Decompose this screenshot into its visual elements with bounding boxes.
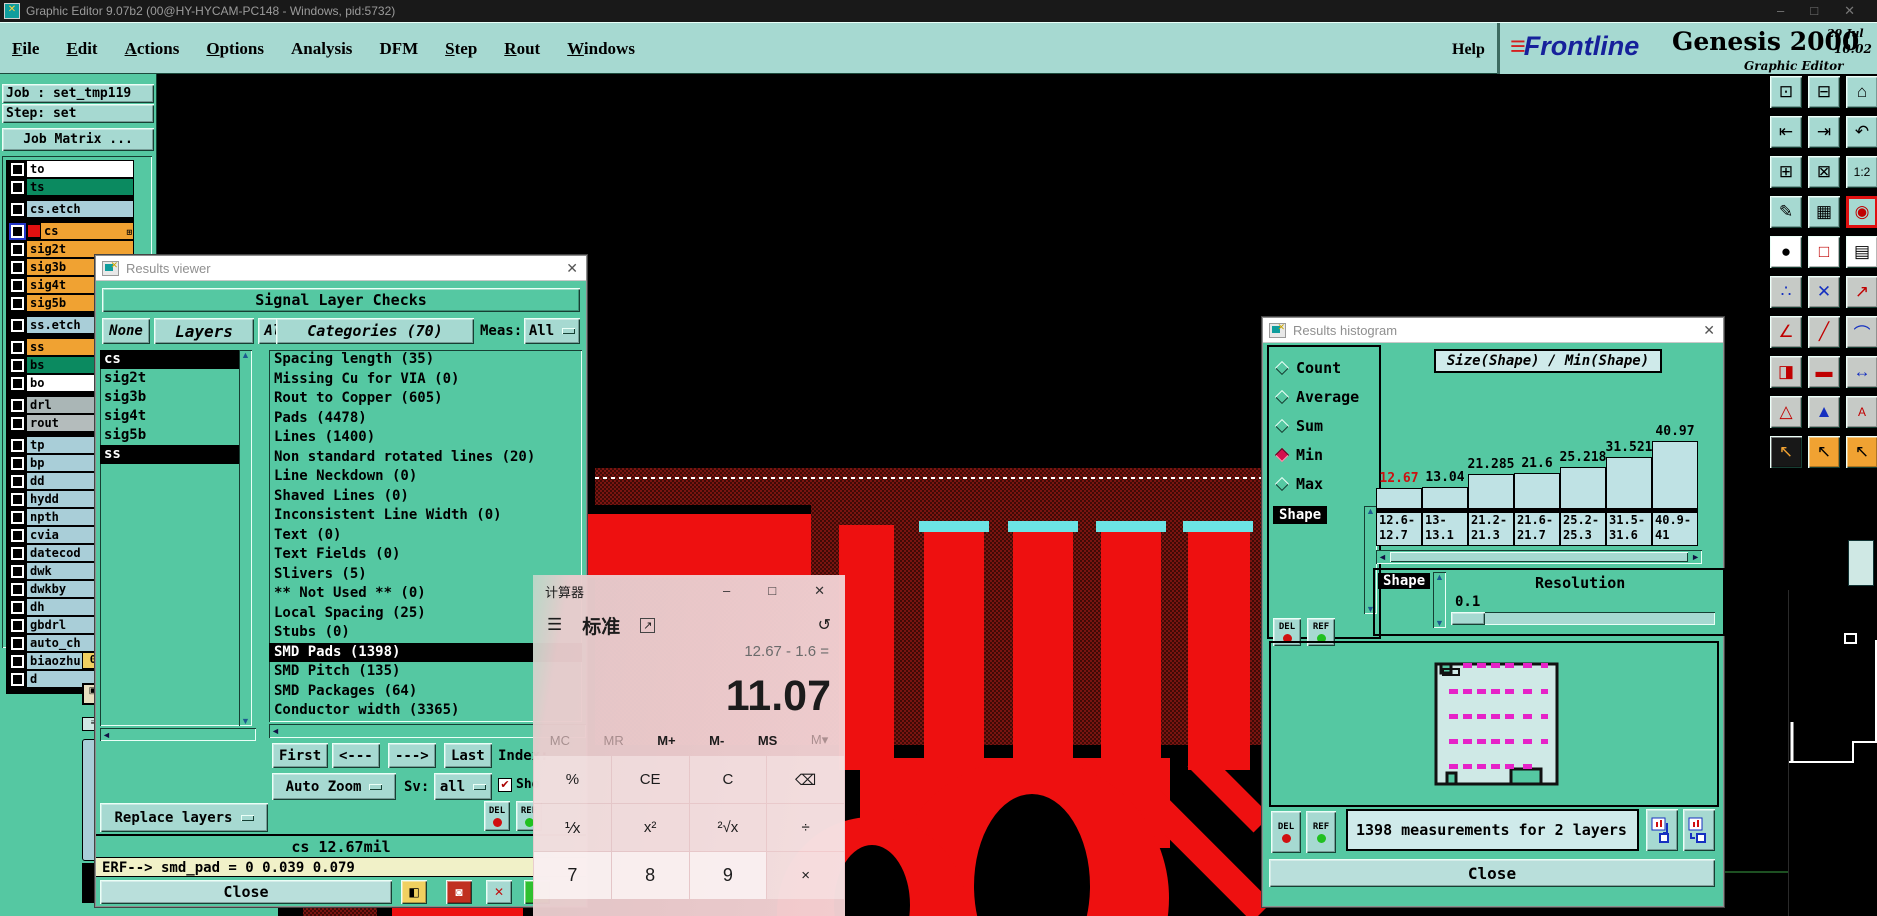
layer-checkbox[interactable]	[11, 619, 24, 632]
triangle-high-icon[interactable]: A	[1846, 396, 1877, 428]
layer-checkbox[interactable]	[11, 359, 24, 372]
layer-checkbox-cell	[7, 179, 27, 195]
green-dot-icon	[1317, 834, 1326, 843]
option-dash-icon	[241, 815, 254, 821]
app-icon: ✕	[4, 3, 20, 19]
calc-key-x²[interactable]: x²	[612, 804, 689, 851]
layer-checkbox[interactable]	[11, 399, 24, 412]
rv-layer-item-cs[interactable]: cs	[100, 350, 239, 369]
layer-checkbox-cell	[7, 277, 27, 293]
layer-checkbox-cell	[7, 581, 27, 597]
bar-value-label: 40.97	[1655, 424, 1694, 439]
window-title: Graphic Editor 9.07b2 (00@HY-HYCAM-PC148…	[26, 4, 395, 18]
radio-diamond-icon	[1275, 447, 1289, 461]
bar-slot: 31.521	[1606, 378, 1652, 509]
prev-button[interactable]: <---	[332, 743, 380, 768]
bin-range-cell: 31.5-31.6	[1606, 512, 1652, 546]
layer-checkbox-cell	[7, 617, 27, 633]
bin-range-cell: 12.6-12.7	[1376, 512, 1422, 546]
layer-checkbox-cell	[7, 161, 27, 177]
scroll-thumb[interactable]	[1390, 552, 1688, 562]
triangle-low-icon[interactable]: △	[1770, 396, 1802, 428]
histogram-bar[interactable]	[1514, 473, 1560, 509]
bin-range-cell: 13-13.1	[1422, 512, 1468, 546]
sv-label: Sv:	[404, 779, 429, 795]
bar-slot: 21.6	[1514, 378, 1560, 509]
auto-zoom-dropdown[interactable]: Auto Zoom	[272, 773, 396, 800]
option-dash-icon	[369, 784, 382, 790]
rv-category-item[interactable]: Inconsistent Line Width (0)	[269, 506, 582, 526]
product-subtitle: Graphic Editor	[1744, 59, 1843, 73]
metric-radio-min[interactable]: Min	[1277, 440, 1379, 469]
metric-radio-count[interactable]: Count	[1277, 353, 1379, 382]
rv-category-item[interactable]: Spacing length (35)	[269, 350, 582, 370]
net-highlight-icon[interactable]: ◉	[1846, 196, 1877, 228]
calculator-mode: 标准	[582, 612, 620, 639]
results-viewer-title: Results viewer	[126, 261, 211, 276]
filter-layers-button[interactable]: Layers	[154, 318, 254, 344]
rv-category-item[interactable]: Pads (4478)	[269, 409, 582, 429]
profile-overview[interactable]	[1788, 590, 1877, 916]
cursor-frame-icon[interactable]: ↖	[1808, 436, 1840, 468]
calc-key-⌫[interactable]: ⌫	[767, 756, 844, 803]
histogram-bar[interactable]	[1606, 457, 1652, 509]
layer-checkbox-cell	[7, 437, 27, 453]
ref-button[interactable]: REF	[1306, 811, 1336, 853]
menu-help[interactable]: Help	[1452, 41, 1485, 59]
layer-checkbox-cell	[7, 527, 27, 543]
histogram-bar[interactable]	[1422, 487, 1468, 509]
bar-value-label: 13.04	[1425, 470, 1464, 485]
measure-type-item[interactable]: Shape	[1273, 506, 1327, 524]
histogram-titlebar[interactable]: Results histogram ✕	[1263, 318, 1723, 343]
vertical-scrollbar[interactable]: ▲▼	[1433, 572, 1446, 628]
memory-row: MCMRM+M-MSM▾	[533, 725, 845, 755]
layer-checkbox[interactable]	[11, 417, 24, 430]
dialog-icon	[102, 261, 119, 276]
flip-icon[interactable]: ◧	[401, 880, 427, 904]
status-readout: cs 12.67mil	[96, 834, 586, 858]
rv-layer-item-ss[interactable]: ss	[100, 445, 239, 464]
rv-layer-item-sig3b[interactable]: sig3b	[100, 388, 239, 407]
menu-dfm[interactable]: DFM	[379, 39, 418, 59]
close-icon[interactable]: ✕	[1844, 3, 1855, 19]
mini-panel	[1848, 540, 1874, 586]
line-width-icon[interactable]: ▬	[1808, 356, 1840, 388]
rv-category-item[interactable]: Missing Cu for VIA (0)	[269, 370, 582, 390]
red-dot-icon	[1282, 834, 1291, 843]
layer-checkbox[interactable]	[11, 583, 24, 596]
zoom-center-icon[interactable]: ⊠	[1808, 156, 1840, 188]
import-histogram-icon[interactable]	[1683, 809, 1715, 851]
layer-checkbox-cell	[7, 375, 27, 391]
calc-key-9[interactable]: 9	[690, 852, 767, 899]
meas-dropdown[interactable]: All	[524, 318, 580, 344]
pad-measure-icon[interactable]: ◨	[1770, 356, 1802, 388]
ref-cross-icon[interactable]: ✕	[486, 880, 512, 904]
bin-range-cell: 21.6-21.7	[1514, 512, 1560, 546]
delete-measure-icon[interactable]: ✕	[1808, 276, 1840, 308]
layer-checkbox-cell	[7, 671, 27, 687]
right-toolbar: ⊡⊟⌂⇤⇥↶⊞⊠1:2✎▦◉●□▤∴✕↗∠╱⌒◨▬↔△▲A↖↖↖	[1770, 76, 1877, 468]
layer-checkbox-cell	[7, 241, 27, 257]
layer-checkbox-cell	[7, 653, 27, 669]
rv-layer-listbox: cssig2tsig3bsig4tsig5bss ▲▼	[100, 350, 252, 726]
vertical-scrollbar[interactable]: ▲▼	[239, 350, 252, 726]
layer-row-cs[interactable]: cs⊞	[7, 223, 133, 239]
menu-analysis[interactable]: Analysis	[291, 39, 352, 59]
calculator-result: 11.07	[533, 667, 845, 725]
menu-actions[interactable]: Actions	[125, 39, 180, 59]
grid-icon[interactable]: ▦	[1808, 196, 1840, 228]
chart-hscrollbar[interactable]: ◄ ►	[1376, 550, 1702, 564]
bin-range-cell: 25.2-25.3	[1560, 512, 1606, 546]
layer-group: tots	[7, 161, 133, 195]
metric-radios: CountAverageSumMinMax	[1269, 347, 1379, 498]
calc-key-⅟x[interactable]: ⅟x	[534, 804, 611, 851]
select-symbol-icon[interactable]: ●	[1770, 236, 1802, 268]
step-label: Step: set	[2, 104, 154, 123]
rv-layers-hscrollbar[interactable]: ◄	[100, 728, 256, 741]
minimize-icon[interactable]: –	[1777, 3, 1784, 19]
calc-key-8[interactable]: 8	[612, 852, 689, 899]
layer-checkbox[interactable]	[11, 565, 24, 578]
history-icon[interactable]: ↺	[818, 615, 831, 635]
rv-category-item[interactable]: Rout to Copper (605)	[269, 389, 582, 409]
memory-button-M-[interactable]: M-	[709, 733, 724, 748]
calc-key-²√x[interactable]: ²√x	[690, 804, 767, 851]
layer-checkbox[interactable]	[11, 261, 24, 274]
results-viewer-titlebar[interactable]: Results viewer ✕	[96, 256, 586, 281]
menu-windows[interactable]: Windows	[567, 39, 635, 59]
rv-category-item[interactable]: Text (0)	[269, 526, 582, 546]
filter-none-button[interactable]: None	[102, 318, 150, 344]
metric-radio-label: Sum	[1296, 417, 1323, 435]
marker-icon[interactable]: ◙	[446, 880, 472, 904]
frontline-logo: ≡Frontline	[1510, 31, 1639, 62]
calculator-window: 计算器 – □ ✕ ☰ 标准 ↗ ↺ 12.67 - 1.6 = 11.07 M…	[533, 575, 845, 916]
bin-range-cell: 40.9-41	[1652, 512, 1698, 546]
menu-options[interactable]: Options	[206, 39, 264, 59]
zoom-fit-icon[interactable]: ⊞	[1770, 156, 1802, 188]
bin-range-cell: 21.2-21.3	[1468, 512, 1514, 546]
menu-bar: FileEditActionsOptionsAnalysisDFMStepRou…	[0, 22, 1877, 74]
time-label: 10:02	[1834, 42, 1872, 56]
maximize-icon[interactable]: □	[768, 583, 776, 599]
point-measure-icon[interactable]: ↗	[1846, 276, 1877, 308]
drop-view-icon[interactable]: ⊟	[1808, 76, 1840, 108]
layer-chip[interactable]: cs.etch	[27, 201, 133, 217]
rv-layer-item-sig5b[interactable]: sig5b	[100, 426, 239, 445]
slope-measure-icon[interactable]: ╱	[1808, 316, 1840, 348]
bar-value-label: 21.6	[1521, 456, 1552, 471]
layer-row-to[interactable]: to	[7, 161, 133, 177]
calculator-expression: 12.67 - 1.6 =	[533, 643, 845, 667]
menu-edit[interactable]: Edit	[66, 39, 97, 59]
triangle-mid-icon[interactable]: ▲	[1808, 396, 1840, 428]
ruler-icon[interactable]: ▤	[1846, 236, 1877, 268]
layer-checkbox-cell	[7, 415, 27, 431]
rv-category-item[interactable]: Lines (1400)	[269, 428, 582, 448]
del-button[interactable]: DEL	[484, 801, 510, 831]
first-button[interactable]: First	[272, 743, 328, 768]
layer-checkbox-cell	[7, 339, 27, 355]
layer-checkbox[interactable]	[11, 655, 24, 668]
logo-arrows-icon: ≡	[1510, 31, 1524, 61]
layer-checkbox-cell	[7, 509, 27, 525]
layer-checkbox[interactable]	[11, 439, 24, 452]
erf-readout: ERF--> smd_pad = 0 0.039 0.079	[96, 857, 586, 877]
layer-checkbox[interactable]	[11, 319, 24, 332]
sv-dropdown[interactable]: all	[434, 773, 492, 800]
bar-value-label: 31.521	[1606, 440, 1653, 455]
calc-key-%[interactable]: %	[534, 756, 611, 803]
metric-radio-sum[interactable]: Sum	[1277, 411, 1379, 440]
metric-radio-label: Count	[1296, 359, 1341, 377]
menu-step[interactable]: Step	[445, 39, 477, 59]
memory-button-M+[interactable]: M+	[657, 733, 675, 748]
cursor-lasso-icon[interactable]: ↖	[1846, 436, 1877, 468]
measure-shapes-icon[interactable]: □	[1808, 236, 1840, 268]
menu-rout[interactable]: Rout	[504, 39, 540, 59]
rv-category-item[interactable]: Shaved Lines (0)	[269, 487, 582, 507]
scroll-left-icon[interactable]: ◄	[271, 726, 280, 736]
metric-radio-average[interactable]: Average	[1277, 382, 1379, 411]
layer-checkbox[interactable]	[11, 673, 24, 686]
layer-checkbox[interactable]	[11, 203, 24, 216]
close-icon[interactable]: ✕	[566, 260, 578, 277]
del-button[interactable]: DEL	[1271, 811, 1301, 853]
layer-checkbox[interactable]	[11, 637, 24, 650]
close-icon[interactable]: ✕	[1703, 322, 1715, 339]
layer-checkbox-cell	[7, 397, 27, 413]
metric-radio-max[interactable]: Max	[1277, 469, 1379, 498]
layer-checkbox[interactable]	[11, 601, 24, 614]
checks-header: Signal Layer Checks	[102, 288, 580, 312]
pan-right-icon[interactable]: ⇥	[1808, 116, 1840, 148]
scroll-down-icon[interactable]: ▼	[1435, 618, 1444, 628]
application-window: ✕ Graphic Editor 9.07b2 (00@HY-HYCAM-PC1…	[0, 0, 1877, 916]
layer-checkbox[interactable]	[11, 547, 24, 560]
shape-preview-panel	[1269, 641, 1719, 807]
resolution-slider[interactable]	[1451, 612, 1715, 625]
layer-checkbox-cell	[7, 223, 27, 239]
maximize-icon[interactable]: □	[1810, 3, 1818, 19]
rv-category-item[interactable]: Text Fields (0)	[269, 545, 582, 565]
layer-checkbox[interactable]	[11, 511, 24, 524]
zoom-ratio-icon[interactable]: 1:2	[1846, 156, 1877, 188]
layer-checkbox-cell	[7, 635, 27, 651]
layer-checkbox-cell	[7, 599, 27, 615]
memory-button-M[interactable]: M▾	[811, 732, 828, 748]
previous-view-icon[interactable]: ↶	[1846, 116, 1877, 148]
scroll-up-icon[interactable]: ▲	[241, 350, 250, 360]
layer-checkbox[interactable]	[11, 475, 24, 488]
histogram-bar[interactable]	[1376, 488, 1422, 509]
meas-label: Meas:	[480, 323, 522, 339]
calc-key-÷[interactable]: ÷	[767, 804, 844, 851]
close-button[interactable]: Close	[100, 880, 392, 904]
memory-button-MR[interactable]: MR	[603, 733, 623, 748]
scroll-right-icon[interactable]: ►	[1691, 552, 1700, 562]
close-button[interactable]: Close	[1269, 859, 1715, 887]
layer-row-ts[interactable]: ts	[7, 179, 133, 195]
layer-checkbox[interactable]	[11, 493, 24, 506]
layer-checkbox[interactable]	[11, 181, 24, 194]
measure-type-list: Shape	[1273, 506, 1364, 614]
layer-checkbox[interactable]	[11, 377, 24, 390]
bar-slot: 13.04	[1422, 378, 1468, 509]
branding-panel: ≡Frontline Genesis 2000 29 Jul 10:02 Gra…	[1500, 23, 1877, 75]
layer-checkbox[interactable]	[11, 279, 24, 292]
cursor-select-icon[interactable]: ↖	[1770, 436, 1802, 468]
layer-checkbox-cell	[7, 455, 27, 471]
rv-category-item[interactable]: Line Neckdown (0)	[269, 467, 582, 487]
layer-checkbox[interactable]	[11, 225, 24, 238]
calc-key-CE[interactable]: CE	[612, 756, 689, 803]
results-histogram-dialog: Results histogram ✕ CountAverageSumMinMa…	[1262, 317, 1724, 907]
bar-slot: 12.67	[1376, 378, 1422, 509]
scroll-left-icon[interactable]: ◄	[1378, 552, 1387, 562]
results-viewer-dialog: Results viewer ✕ Signal Layer Checks Non…	[95, 255, 587, 907]
layer-checkbox-cell	[7, 473, 27, 489]
bar-slot: 21.285	[1468, 378, 1514, 509]
menu-items: FileEditActionsOptionsAnalysisDFMStepRou…	[12, 39, 662, 59]
angle-measure-icon[interactable]: ∠	[1770, 316, 1802, 348]
memory-button-MS[interactable]: MS	[758, 733, 778, 748]
slider-thumb[interactable]	[1451, 612, 1485, 625]
clip-view-icon[interactable]: ⊡	[1770, 76, 1802, 108]
shape-item[interactable]: Shape	[1378, 573, 1430, 589]
dialog-icon	[1269, 323, 1286, 338]
active-layer-swatch	[28, 225, 40, 237]
layer-checkbox[interactable]	[11, 163, 24, 176]
menu-file[interactable]: File	[12, 39, 39, 59]
layer-chip[interactable]: ts	[27, 179, 133, 195]
bar-value-label: 12.67	[1379, 471, 1418, 486]
resolution-label: Resolution	[1535, 574, 1625, 592]
chart-title: Size(Shape) / Min(Shape)	[1434, 349, 1662, 373]
minimize-icon[interactable]: –	[723, 583, 730, 599]
net-points-icon[interactable]: ∴	[1770, 276, 1802, 308]
bar-slot: 25.218	[1560, 378, 1606, 509]
layer-checkbox-cell	[7, 491, 27, 507]
radio-diamond-icon	[1275, 360, 1289, 374]
resolution-panel: Shape ▲▼ Resolution 0.1	[1373, 568, 1725, 636]
layer-checkbox-cell	[7, 317, 27, 333]
next-button[interactable]: --->	[388, 743, 436, 768]
option-dash-icon	[562, 328, 575, 334]
histogram-bins: 12.6-12.713-13.121.2-21.321.6-21.725.2-2…	[1376, 512, 1698, 546]
bar-value-label: 25.218	[1560, 450, 1607, 465]
layer-checkbox-cell	[7, 259, 27, 275]
profile-outline	[1789, 590, 1877, 916]
option-dash-icon	[473, 784, 486, 790]
categories-header[interactable]: Categories (70)	[276, 318, 474, 344]
export-histogram-icon[interactable]	[1646, 809, 1678, 851]
job-label: Job : set_tmp119	[2, 84, 154, 103]
window-titlebar: ✕ Graphic Editor 9.07b2 (00@HY-HYCAM-PC1…	[0, 0, 1877, 22]
arc-measure-icon[interactable]: ⌒	[1846, 316, 1877, 348]
pan-left-icon[interactable]: ⇤	[1770, 116, 1802, 148]
hamburger-icon[interactable]: ☰	[547, 615, 562, 635]
rv-category-item[interactable]: Non standard rotated lines (20)	[269, 448, 582, 468]
date-label: 29 Jul	[1827, 27, 1864, 40]
radio-diamond-icon	[1275, 476, 1289, 490]
histogram-bar[interactable]	[1652, 441, 1698, 509]
red-dot-icon	[493, 818, 502, 827]
layer-checkbox[interactable]	[11, 297, 24, 310]
scroll-down-icon[interactable]: ▼	[241, 716, 250, 726]
draw-tools-icon[interactable]: ✎	[1770, 196, 1802, 228]
metric-radio-label: Min	[1296, 446, 1323, 464]
memory-button-MC[interactable]: MC	[550, 733, 570, 748]
layer-checkbox[interactable]	[11, 457, 24, 470]
scroll-left-icon[interactable]: ◄	[102, 730, 111, 740]
home-view-icon[interactable]: ⌂	[1846, 76, 1877, 108]
bar-value-label: 21.285	[1468, 457, 1515, 472]
calc-key-C[interactable]: C	[690, 756, 767, 803]
scroll-up-icon[interactable]: ▲	[1435, 572, 1444, 582]
measurement-summary: 1398 measurements for 2 layers	[1346, 809, 1639, 851]
calculator-titlebar[interactable]: 计算器 – □ ✕	[533, 575, 845, 607]
metric-panel: CountAverageSumMinMax Shape ▲▼ DEL REF	[1267, 345, 1381, 639]
histogram-bars: 12.6713.0421.28521.625.21831.52140.97	[1376, 378, 1698, 509]
job-matrix-button[interactable]: Job Matrix ...	[2, 128, 154, 151]
layer-checkbox-cell	[7, 563, 27, 579]
calculator-title: 计算器	[545, 582, 584, 601]
metric-radio-label: Max	[1296, 475, 1323, 493]
metric-radio-label: Average	[1296, 388, 1359, 406]
layer-checkbox[interactable]	[11, 529, 24, 542]
replace-layers-dropdown[interactable]: Replace layers	[100, 803, 268, 832]
histogram-title: Results histogram	[1293, 323, 1397, 338]
job-panel: Job : set_tmp119 Step: set Job Matrix ..…	[2, 84, 154, 151]
layer-chip[interactable]: to	[27, 161, 133, 177]
layer-checkbox-cell	[7, 295, 27, 311]
radio-diamond-icon	[1275, 418, 1289, 432]
calc-key-7[interactable]: 7	[534, 852, 611, 899]
rv-layer-item-sig2t[interactable]: sig2t	[100, 369, 239, 388]
histogram-bar[interactable]	[1468, 474, 1514, 509]
histogram-bar[interactable]	[1560, 467, 1606, 509]
keep-on-top-icon[interactable]: ↗	[640, 618, 655, 633]
resolution-value: 0.1	[1455, 594, 1480, 610]
rv-layer-item-sig4t[interactable]: sig4t	[100, 407, 239, 426]
calculator-keys: %CEC⌫⅟xx²²√x÷789×	[533, 755, 845, 900]
last-button[interactable]: Last	[444, 743, 492, 768]
radio-diamond-icon	[1275, 389, 1289, 403]
layer-checkbox-cell	[7, 201, 27, 217]
smd-footprint-preview	[1433, 661, 1560, 787]
checkbox-check-icon: ✔	[498, 778, 512, 792]
layer-group: cs.etch	[7, 201, 133, 217]
layer-grid-icon: ⊞	[127, 225, 132, 241]
layer-checkbox-cell	[7, 357, 27, 373]
layer-row-cs.etch[interactable]: cs.etch	[7, 201, 133, 217]
close-icon[interactable]: ✕	[814, 583, 825, 599]
layer-checkbox[interactable]	[11, 243, 24, 256]
dimension-icon[interactable]: ↔	[1846, 356, 1877, 388]
rv-layer-list: cssig2tsig3bsig4tsig5bss	[100, 350, 239, 726]
scroll-up-icon[interactable]: ▲	[1366, 506, 1375, 516]
layer-chip[interactable]: cs⊞	[41, 223, 133, 239]
layer-checkbox-cell	[7, 545, 27, 561]
bar-slot: 40.97	[1652, 378, 1698, 509]
layer-checkbox[interactable]	[11, 341, 24, 354]
calc-key-×[interactable]: ×	[767, 852, 844, 899]
